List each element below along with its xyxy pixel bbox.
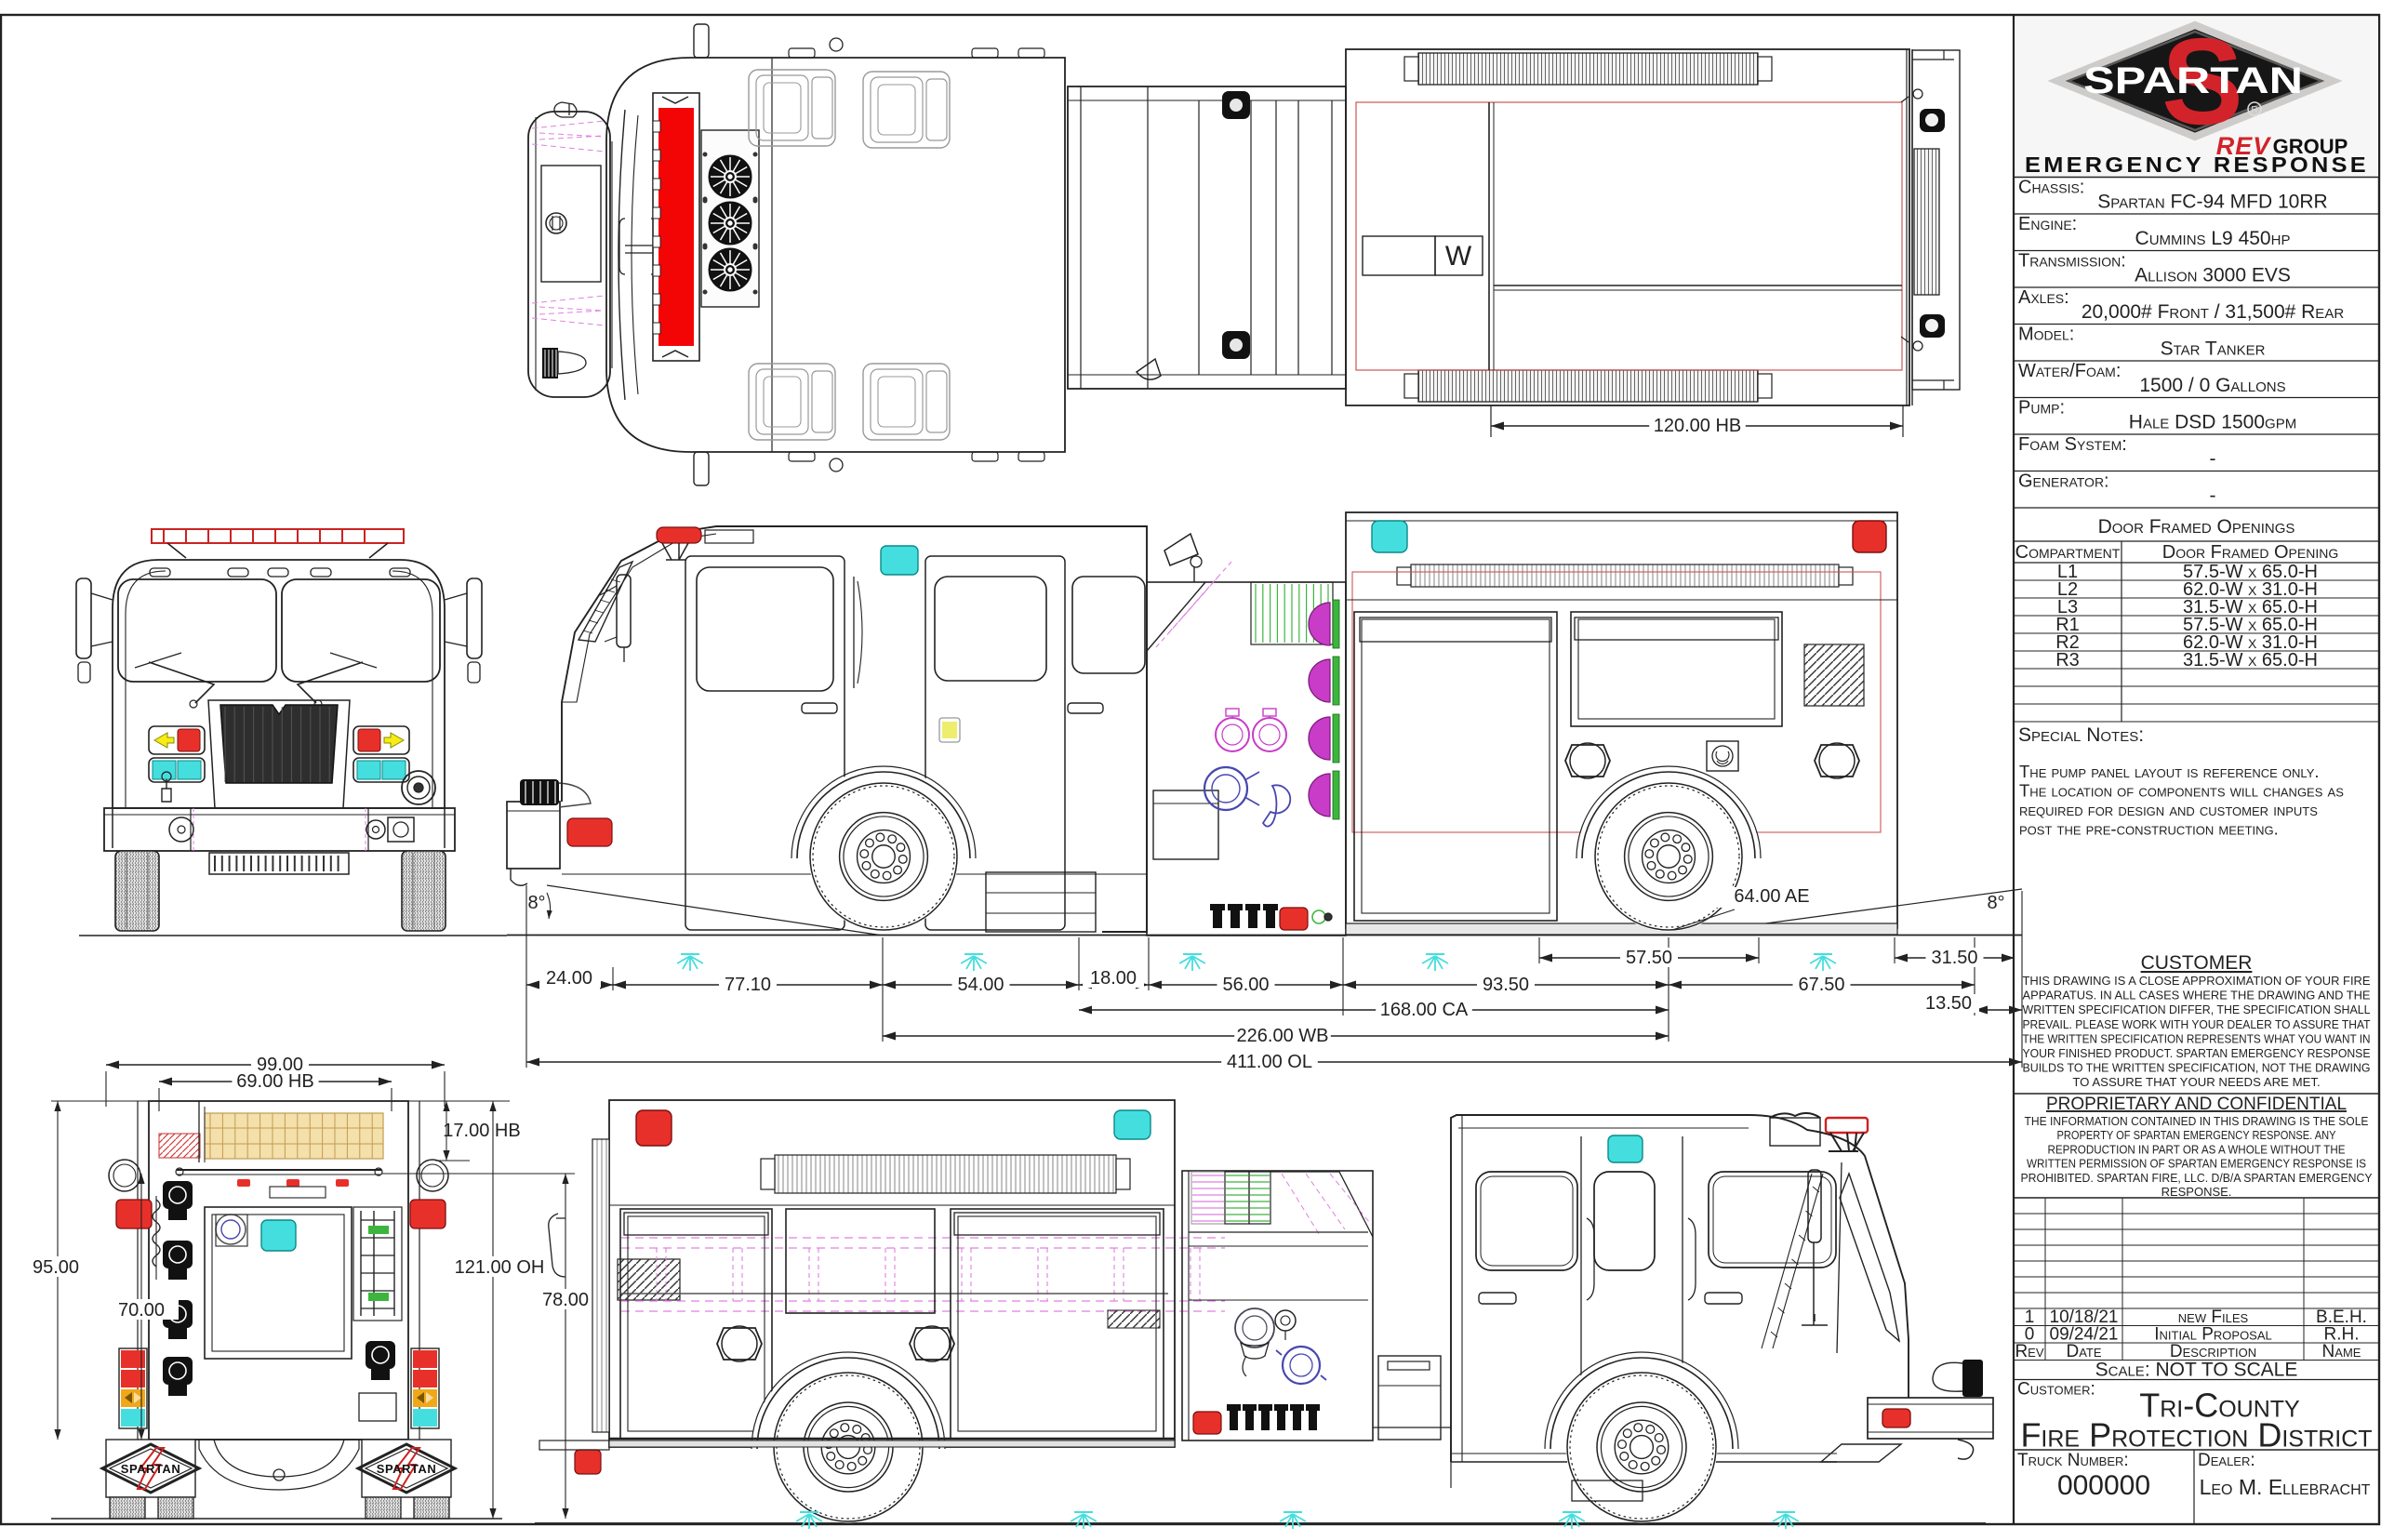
svg-text:CUSTOMER: CUSTOMER [2141,952,2253,974]
svg-text:Name: Name [2322,1342,2361,1361]
svg-text:31.50: 31.50 [1931,948,1977,968]
svg-text:Door Framed Opening: Door Framed Opening [2162,542,2338,563]
svg-text:67.50: 67.50 [1798,975,1844,995]
svg-text:69.00 HB: 69.00 HB [236,1071,313,1092]
svg-text:Allison 3000 EVS: Allison 3000 EVS [2135,265,2291,286]
svg-text:-: - [2210,448,2216,470]
svg-text:57.50: 57.50 [1626,948,1672,968]
svg-text:-: - [2210,485,2216,507]
svg-text:Rev: Rev [2015,1342,2043,1361]
svg-text:THE INFORMATION CONTAINED IN T: THE INFORMATION CONTAINED IN THIS DRAWIN… [2025,1114,2369,1128]
svg-text:Special Notes:: Special Notes: [2018,724,2144,746]
svg-text:13.50: 13.50 [1925,993,1972,1014]
svg-text:78.00: 78.00 [542,1290,589,1310]
svg-text:Dealer:: Dealer: [2198,1451,2255,1470]
svg-text:R: R [2251,105,2257,115]
svg-text:Chassis:: Chassis: [2018,178,2084,198]
svg-text:8°: 8° [1987,893,2004,913]
svg-text:Engine:: Engine: [2018,214,2077,234]
svg-text:TO ASSURE THAT YOUR NEEDS ARE: TO ASSURE THAT YOUR NEEDS ARE MET. [2072,1075,2320,1089]
svg-text:168.00 CA: 168.00 CA [1380,1000,1469,1020]
svg-text:411.00 OL: 411.00 OL [1227,1052,1312,1072]
svg-text:RESPONSE.: RESPONSE. [2162,1185,2232,1199]
svg-text:The pump panel layout is refer: The pump panel layout is reference only. [2019,762,2320,781]
svg-text:PREVAIL. PLEASE WORK WITH YOUR: PREVAIL. PLEASE WORK WITH YOUR DEALER TO… [2023,1017,2371,1031]
svg-text:SPARTAN: SPARTAN [377,1462,436,1476]
svg-text:20,000# Front / 31,500# Rear: 20,000# Front / 31,500# Rear [2082,301,2344,323]
svg-text:Generator:: Generator: [2018,471,2109,492]
svg-text:Transmission:: Transmission: [2018,251,2126,272]
svg-text:Axles:: Axles: [2018,287,2069,308]
svg-text:required for design and custom: required for design and customer inputs [2019,800,2318,819]
svg-text:95.00: 95.00 [33,1257,79,1278]
svg-text:Hale DSD 1500gpm: Hale DSD 1500gpm [2129,412,2296,433]
svg-text:18.00: 18.00 [1090,968,1137,989]
svg-text:REPRODUCTION IN PART OR AS A W: REPRODUCTION IN PART OR AS A WHOLE WITHO… [2048,1142,2346,1156]
svg-text:Scale: NOT TO SCALE: Scale: NOT TO SCALE [2095,1360,2298,1381]
svg-text:Spartan FC-94 MFD 10RR: Spartan FC-94 MFD 10RR [2097,192,2327,213]
svg-text:Truck Number:: Truck Number: [2017,1451,2129,1470]
svg-text:Model:: Model: [2018,325,2074,345]
svg-text:WRITTEN PERMISSION OF SPARTAN: WRITTEN PERMISSION OF SPARTAN EMERGENCY … [2027,1157,2366,1171]
svg-text:31.5-W x 65.0-H: 31.5-W x 65.0-H [2183,650,2318,670]
svg-text:EMERGENCY RESPONSE: EMERGENCY RESPONSE [2025,153,2369,177]
svg-text:THIS DRAWING IS A CLOSE APPROX: THIS DRAWING IS A CLOSE APPROXIMATION OF… [2023,974,2371,988]
svg-text:post the pre-construction meet: post the pre-construction meeting. [2019,819,2279,839]
svg-text:Door Framed Openings: Door Framed Openings [2098,516,2295,538]
svg-text:The location of components wil: The location of components will changes … [2019,781,2344,801]
svg-text:W: W [1445,241,1472,272]
svg-text:Star Tanker: Star Tanker [2161,339,2266,360]
svg-text:YOUR FINISHED PRODUCT. SPARTAN: YOUR FINISHED PRODUCT. SPARTAN EMERGENCY… [2023,1046,2371,1060]
svg-text:77.10: 77.10 [725,975,771,995]
svg-text:64.00 AE: 64.00 AE [1734,886,1809,907]
svg-text:SPARTAN: SPARTAN [121,1462,180,1476]
svg-text:BUILDS TO THE WRITTEN SPECIFIC: BUILDS TO THE WRITTEN SPECIFICATION, NOT… [2023,1061,2371,1075]
svg-text:000000: 000000 [2057,1470,2150,1501]
svg-text:17.00 HB: 17.00 HB [443,1121,520,1141]
svg-text:Water/Foam:: Water/Foam: [2018,361,2121,381]
svg-text:PROPERTY OF SPARTAN EMERGENCY: PROPERTY OF SPARTAN EMERGENCY RESPONSE. … [2057,1128,2336,1142]
svg-text:Compartment: Compartment [2015,542,2121,563]
svg-text:Fire Protection District: Fire Protection District [2020,1416,2372,1454]
svg-text:1500 / 0 Gallons: 1500 / 0 Gallons [2139,375,2285,396]
svg-text:WRITTEN SPECIFICATION DIFFER,: WRITTEN SPECIFICATION DIFFER, THE SPECIF… [2023,1002,2371,1016]
svg-text:PROPRIETARY AND CONFIDENTIAL: PROPRIETARY AND CONFIDENTIAL [2046,1095,2347,1114]
svg-text:Leo M. Ellebracht: Leo M. Ellebracht [2200,1475,2371,1499]
svg-text:24.00: 24.00 [546,968,592,989]
svg-text:Cummins L9 450hp: Cummins L9 450hp [2135,228,2291,249]
svg-text:93.50: 93.50 [1483,975,1529,995]
svg-text:226.00 WB: 226.00 WB [1237,1026,1329,1046]
svg-text:Customer:: Customer: [2017,1380,2095,1400]
svg-text:Pump:: Pump: [2018,398,2065,418]
svg-text:56.00: 56.00 [1222,975,1269,995]
svg-text:70.00: 70.00 [118,1300,165,1321]
svg-text:PROHIBITED. SPARTAN FIRE, LLC.: PROHIBITED. SPARTAN FIRE, LLC. D/B/A SPA… [2021,1171,2373,1185]
svg-text:8°: 8° [527,893,545,913]
svg-text:Foam System:: Foam System: [2018,434,2127,455]
svg-text:121.00 OH: 121.00 OH [455,1257,545,1278]
svg-text:120.00 HB: 120.00 HB [1654,416,1742,436]
svg-text:SPARTAN: SPARTAN [2083,60,2303,101]
svg-text:APPARATUS. IN ALL CASES WHERE: APPARATUS. IN ALL CASES WHERE THE DRAWIN… [2023,989,2371,1002]
svg-text:R3: R3 [2055,650,2080,670]
svg-text:THE WRITTEN SPECIFICATION REPR: THE WRITTEN SPECIFICATION REPRESENTS WHA… [2023,1031,2371,1045]
svg-text:54.00: 54.00 [957,975,1004,995]
